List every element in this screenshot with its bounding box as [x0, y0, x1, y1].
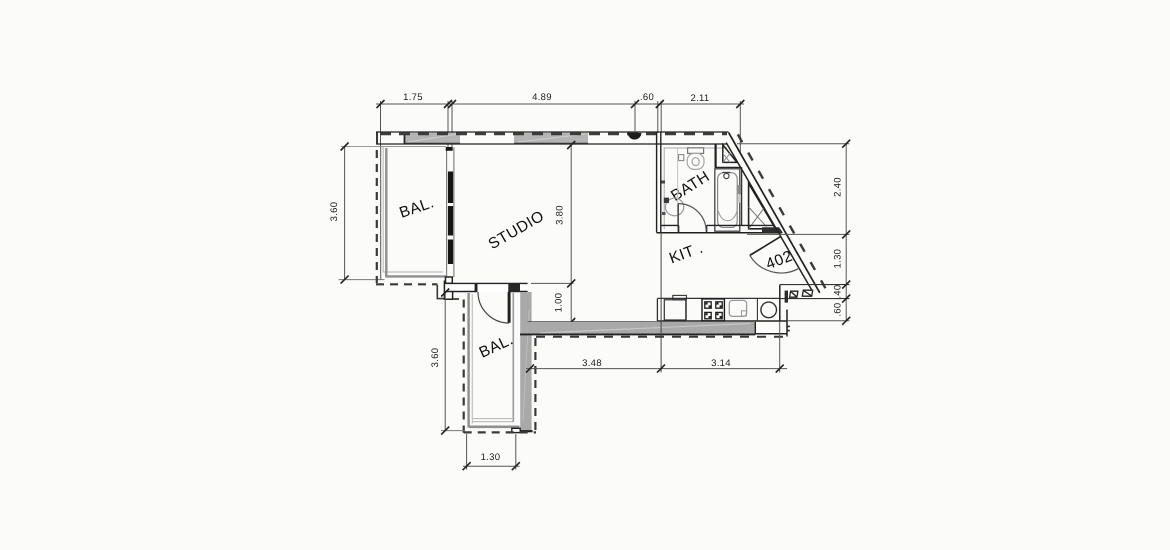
- svg-text:3.48: 3.48: [582, 358, 602, 369]
- svg-text:1.00: 1.00: [554, 293, 565, 313]
- svg-text:2.40: 2.40: [833, 177, 844, 197]
- svg-text:3.60: 3.60: [430, 348, 441, 368]
- svg-text:.40: .40: [833, 285, 844, 299]
- svg-text:4.89: 4.89: [532, 92, 552, 103]
- svg-text:2.11: 2.11: [691, 93, 710, 104]
- svg-text:3.60: 3.60: [329, 202, 340, 222]
- svg-text:.60: .60: [640, 92, 654, 103]
- svg-text:3.14: 3.14: [711, 358, 731, 369]
- svg-text:1.30: 1.30: [481, 452, 501, 463]
- svg-text:3.80: 3.80: [555, 205, 566, 225]
- svg-text:1.75: 1.75: [403, 92, 423, 103]
- svg-text:.60: .60: [833, 303, 844, 317]
- svg-text:1.30: 1.30: [833, 249, 844, 269]
